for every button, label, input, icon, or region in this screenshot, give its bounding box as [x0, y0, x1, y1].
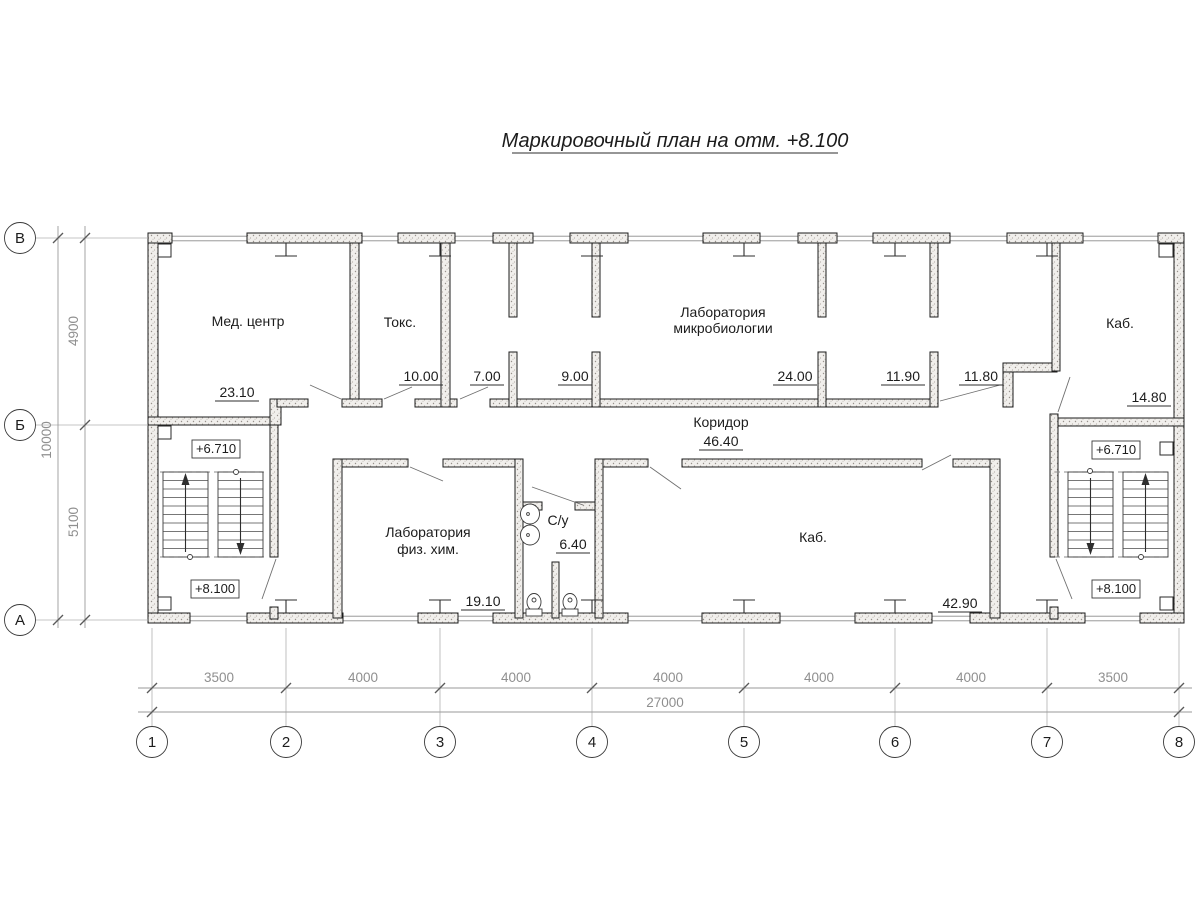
- axis-label-1: 1: [148, 734, 156, 751]
- corner-block: [1159, 244, 1173, 257]
- sink-drain: [527, 513, 530, 516]
- stair-treads: [163, 481, 263, 549]
- floor-plan-drawing: Маркировочный план на отм. +8.100: [0, 0, 1200, 900]
- wall-segment: [798, 233, 837, 243]
- dim-span-4: 4000: [804, 670, 834, 685]
- stair-down-arrowhead: [1087, 543, 1095, 555]
- room-label-med-center: Мед. центр: [212, 313, 285, 329]
- wall-segment: [398, 233, 455, 243]
- wall-segment: [1052, 243, 1060, 371]
- corner-block: [1160, 597, 1173, 610]
- axis-label-v: В: [15, 230, 25, 247]
- floor-plan-canvas: Маркировочный план на отм. +8.100: [0, 0, 1200, 900]
- wall-segment: [443, 459, 523, 467]
- stairs-right: [1055, 469, 1170, 560]
- area-label-sanitary: 6.40: [559, 536, 586, 552]
- sink-drain: [527, 534, 530, 537]
- wall-segment: [415, 399, 457, 407]
- wall-segment: [592, 352, 600, 407]
- sink: [521, 525, 540, 545]
- corner-block: [158, 244, 171, 257]
- room-label-kab-bottom: Каб.: [799, 529, 827, 545]
- wall-segment: [350, 243, 359, 399]
- corner-block: [158, 597, 171, 610]
- area-label-room-11-90: 11.90: [886, 368, 920, 384]
- wall-segment: [855, 613, 932, 623]
- wall-segment: [1050, 607, 1058, 619]
- axis-label-7: 7: [1043, 734, 1051, 751]
- wall-segment: [418, 613, 458, 623]
- wall-segment: [493, 613, 628, 623]
- area-label-toks: 10.00: [403, 368, 438, 384]
- wall-segment: [509, 243, 517, 317]
- axis-label-3: 3: [436, 734, 444, 751]
- wall-segment: [148, 233, 172, 243]
- wall-segment: [873, 233, 950, 243]
- wall-segment: [1050, 414, 1058, 557]
- corner-blocks: [158, 244, 1173, 610]
- drawing-title: Маркировочный план на отм. +8.100: [502, 130, 849, 152]
- stair-treads: [1068, 481, 1168, 549]
- wall-segment: [930, 352, 938, 407]
- wall-segment: [990, 459, 1000, 618]
- wall-segment: [247, 613, 343, 623]
- wall-segment: [148, 613, 190, 623]
- area-label-room-7: 7.00: [473, 368, 500, 384]
- wall-segment: [493, 233, 533, 243]
- rail-post: [188, 555, 193, 560]
- wall-segment: [148, 233, 158, 623]
- room-label-sanitary: С/у: [548, 512, 569, 528]
- room-label-micro-lab-line1: Лаборатория: [680, 304, 765, 320]
- axis-label-8: 8: [1175, 734, 1183, 751]
- corner-block: [158, 426, 171, 439]
- wall-segment: [1174, 233, 1184, 623]
- wall-segment: [703, 233, 760, 243]
- room-label-kab-top: Каб.: [1106, 315, 1134, 331]
- elevation-landing-left: +6.710: [196, 441, 236, 456]
- column-markers: [275, 243, 1058, 613]
- wall-segment: [570, 233, 628, 243]
- wall-segment: [595, 459, 603, 618]
- toilet-detail: [532, 598, 536, 602]
- wall-segment: [930, 243, 938, 317]
- wall-segment: [270, 607, 278, 619]
- wall-segment: [818, 352, 826, 407]
- wall-segment: [270, 425, 278, 557]
- room-label-fizhim-line1: Лаборатория: [385, 524, 470, 540]
- corner-block: [1160, 442, 1173, 455]
- wall-segment: [247, 233, 362, 243]
- wall-segment: [552, 562, 559, 618]
- axis-label-6: 6: [891, 734, 899, 751]
- wall-segment: [490, 399, 938, 407]
- toilet-detail: [568, 598, 572, 602]
- window-lines: [148, 236, 1184, 621]
- wall-segment: [1007, 233, 1083, 243]
- wall-segment: [342, 459, 408, 467]
- area-label-fizhim: 19.10: [465, 593, 500, 609]
- area-label-corridor: 46.40: [703, 433, 738, 449]
- dim-span-2: 4000: [501, 670, 531, 685]
- rail-post: [1139, 555, 1144, 560]
- dimension-system: 3500 4000 4000 4000 4000 4000 3500 27000…: [36, 226, 1192, 726]
- axis-label-5: 5: [740, 734, 748, 751]
- wall-segment: [970, 613, 1085, 623]
- axis-label-b: Б: [15, 417, 25, 434]
- axis-label-4: 4: [588, 734, 596, 751]
- area-label-kab-bottom: 42.90: [942, 595, 977, 611]
- stair-down-arrowhead: [237, 543, 245, 555]
- wall-segment: [818, 243, 826, 317]
- dim-total: 27000: [646, 695, 684, 710]
- elevation-floor-left: +8.100: [195, 581, 235, 596]
- wall-segment: [277, 399, 308, 407]
- dim-row-span-1: 5100: [66, 507, 81, 537]
- room-label-micro-lab-line2: микробиологии: [673, 320, 772, 336]
- axis-label-2: 2: [282, 734, 290, 751]
- wall-segment: [682, 459, 922, 467]
- area-label-med-center: 23.10: [219, 384, 254, 400]
- elevation-floor-right: +8.100: [1096, 581, 1136, 596]
- wall-segment: [702, 613, 780, 623]
- elevation-landing-right: +6.710: [1096, 442, 1136, 457]
- dim-span-0: 3500: [204, 670, 234, 685]
- dim-span-6: 3500: [1098, 670, 1128, 685]
- area-label-room-9: 9.00: [561, 368, 588, 384]
- wall-segment: [592, 243, 600, 317]
- dim-span-1: 4000: [348, 670, 378, 685]
- dim-span-5: 4000: [956, 670, 986, 685]
- stair-up-arrowhead: [182, 473, 190, 485]
- area-label-room-11-80: 11.80: [964, 368, 998, 384]
- wall-segment: [148, 417, 277, 425]
- rail-post: [1088, 469, 1093, 474]
- dim-span-3: 4000: [653, 670, 683, 685]
- toilet-tank: [562, 609, 578, 616]
- wall-segment: [509, 352, 517, 407]
- dim-row-total: 10000: [39, 421, 54, 459]
- axis-label-a: А: [15, 612, 25, 629]
- wall-segment: [342, 399, 382, 407]
- area-label-kab-top: 14.80: [1131, 389, 1166, 405]
- wall-segment: [1003, 363, 1057, 372]
- wall-segment: [1140, 613, 1184, 623]
- wall-segment: [441, 243, 450, 407]
- room-label-corridor: Коридор: [693, 414, 749, 430]
- wall-segment: [333, 459, 342, 618]
- stair-up-arrowhead: [1142, 473, 1150, 485]
- interior-walls: [148, 243, 1184, 619]
- wall-segment: [1158, 233, 1184, 243]
- door-swings: [262, 377, 1072, 599]
- rail-post: [234, 470, 239, 475]
- room-label-fizhim-line2: физ. хим.: [397, 541, 459, 557]
- exterior-walls: [148, 233, 1184, 623]
- sink: [521, 504, 540, 524]
- toilet-tank: [526, 609, 542, 616]
- wall-segment: [1052, 418, 1184, 426]
- room-label-toks: Токс.: [384, 314, 416, 330]
- stairs-left: [160, 470, 266, 560]
- area-label-micro-lab: 24.00: [777, 368, 812, 384]
- dim-row-span-0: 4900: [66, 316, 81, 346]
